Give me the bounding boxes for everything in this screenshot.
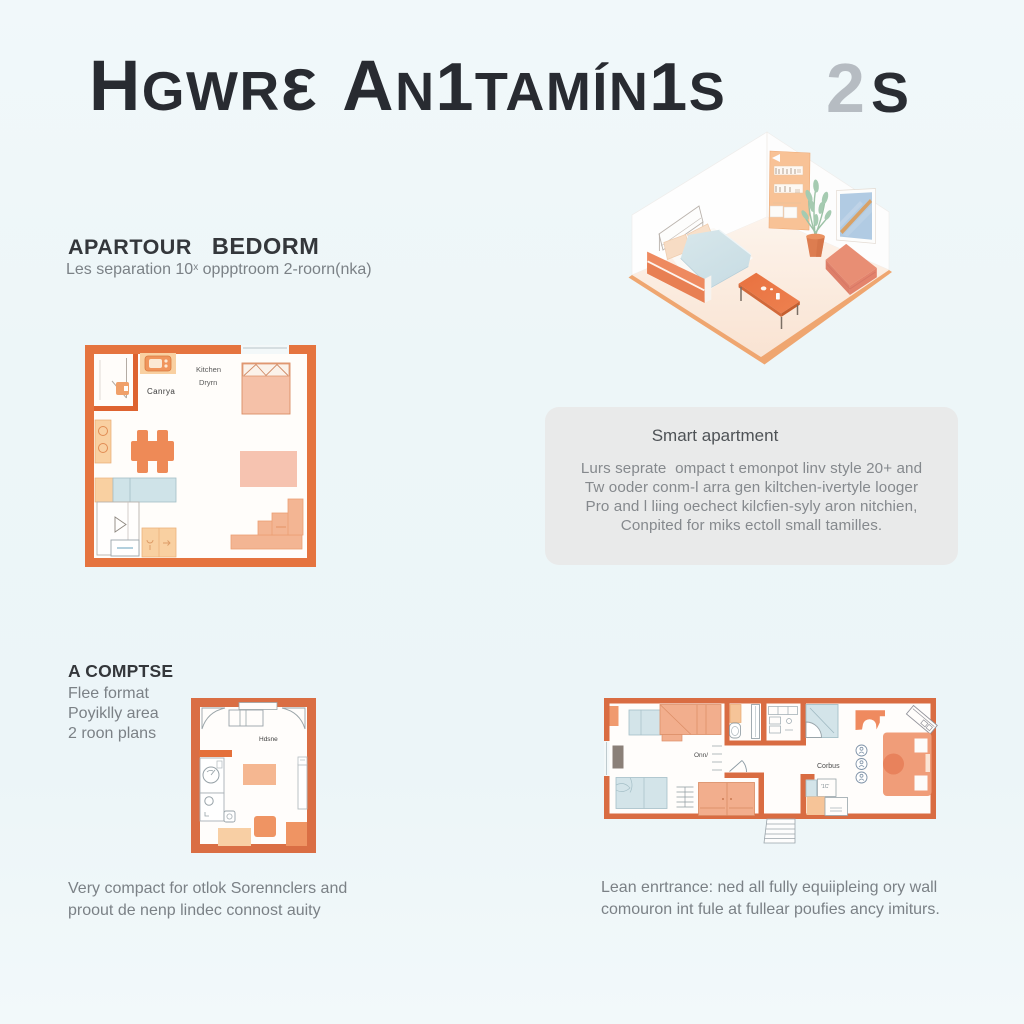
svg-text:Kitchen: Kitchen [196,365,221,374]
svg-text:Onn/: Onn/ [694,752,708,759]
svg-text:'1C': '1C' [821,784,829,790]
svg-text:Corbus: Corbus [817,763,840,770]
svg-text:Canrya: Canrya [147,387,175,396]
svg-text:Dryrn: Dryrn [199,378,217,387]
svg-text:Hdsne: Hdsne [259,736,278,743]
